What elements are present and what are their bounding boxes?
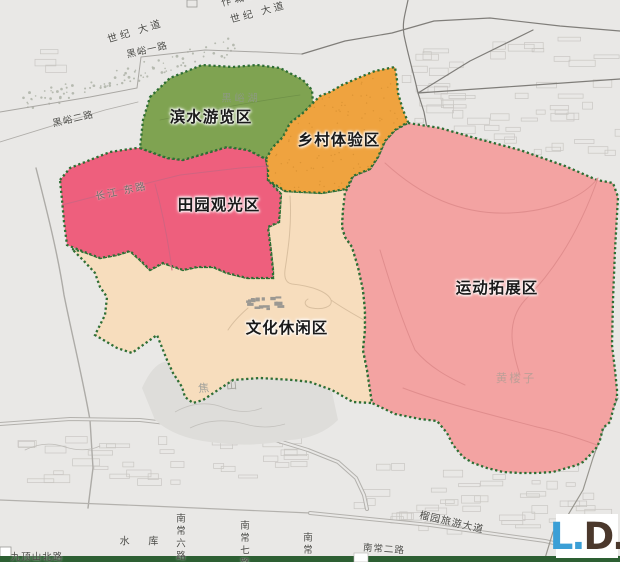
planning-map: 滨水游览区 乡村体验区 田园观光区 文化休闲区 运动拓展区 世纪 大道 世纪 大… (0, 0, 620, 562)
ld-logo: L.D. (556, 514, 618, 558)
logo-part-1: L. (550, 518, 584, 555)
bottom-bar-notch (354, 553, 368, 562)
bottom-green-bar (0, 556, 620, 562)
logo-part-2: D. (583, 518, 620, 555)
map-canvas (0, 0, 620, 562)
